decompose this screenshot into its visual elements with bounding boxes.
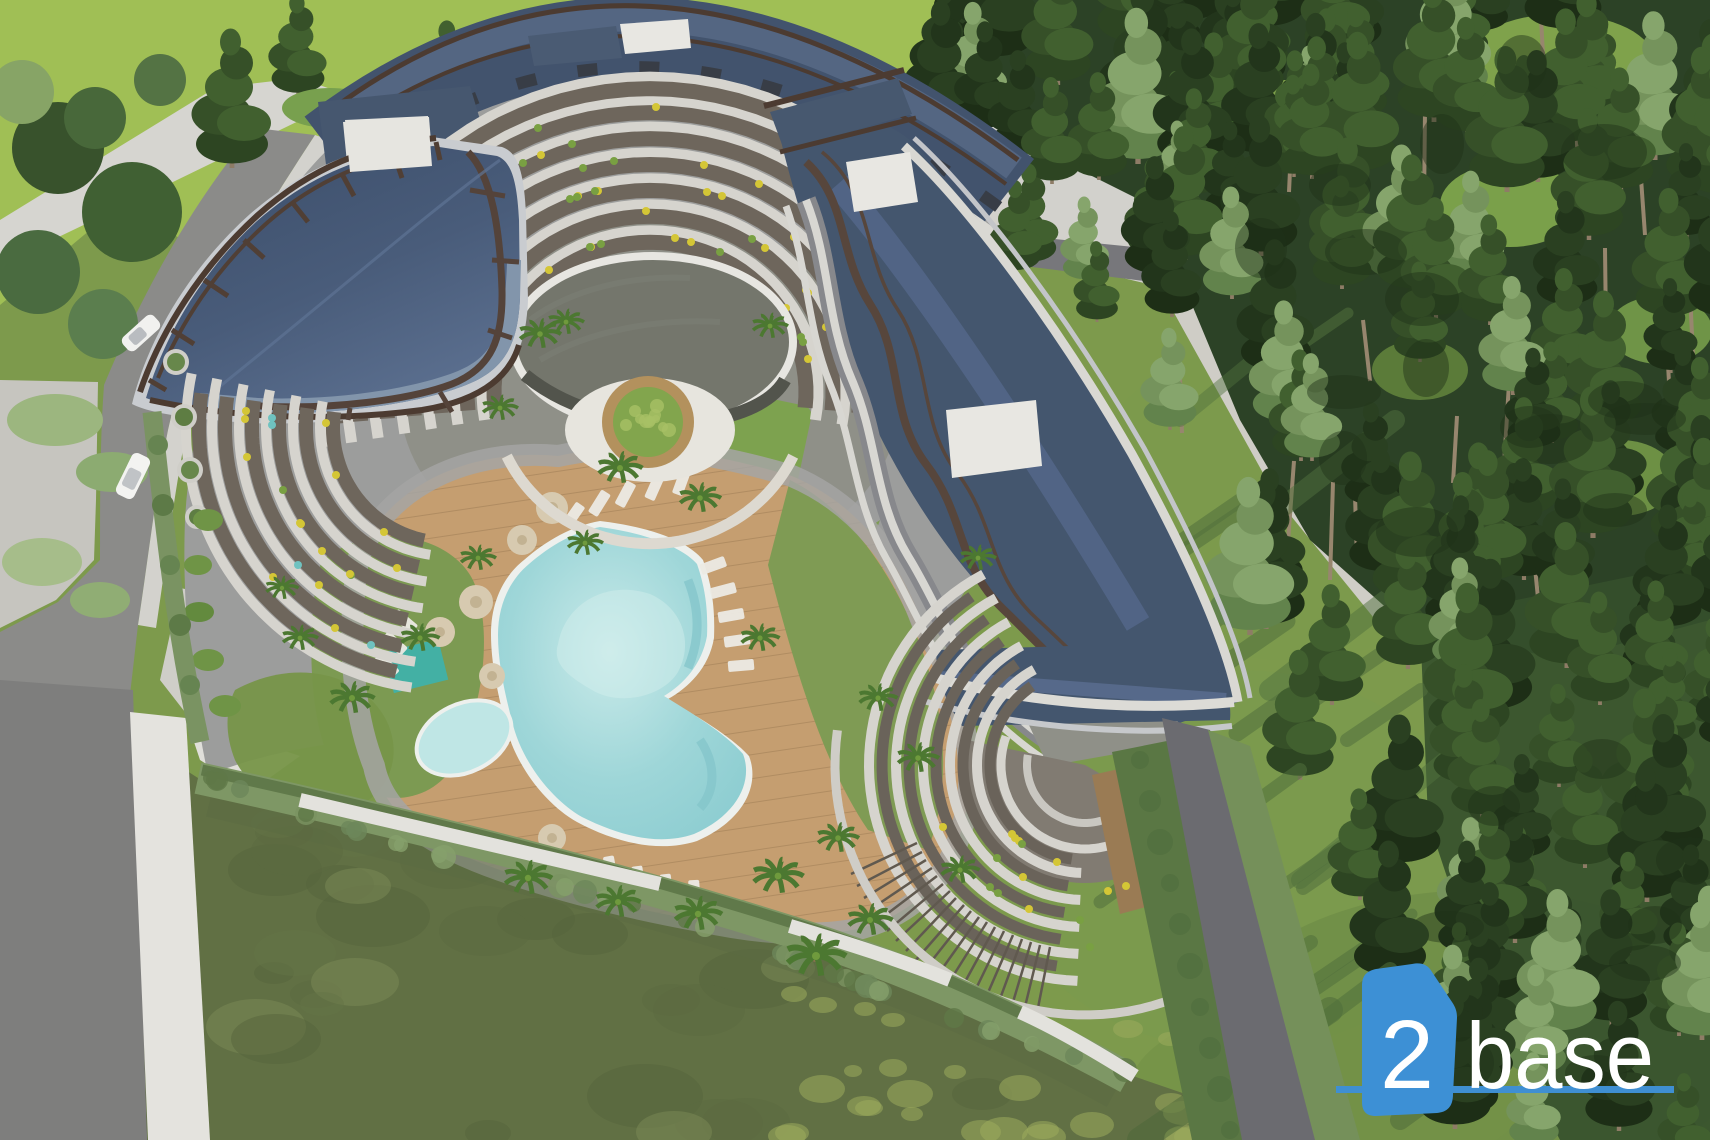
svg-text:base: base — [1466, 1003, 1654, 1108]
svg-text:2: 2 — [1380, 1000, 1434, 1109]
